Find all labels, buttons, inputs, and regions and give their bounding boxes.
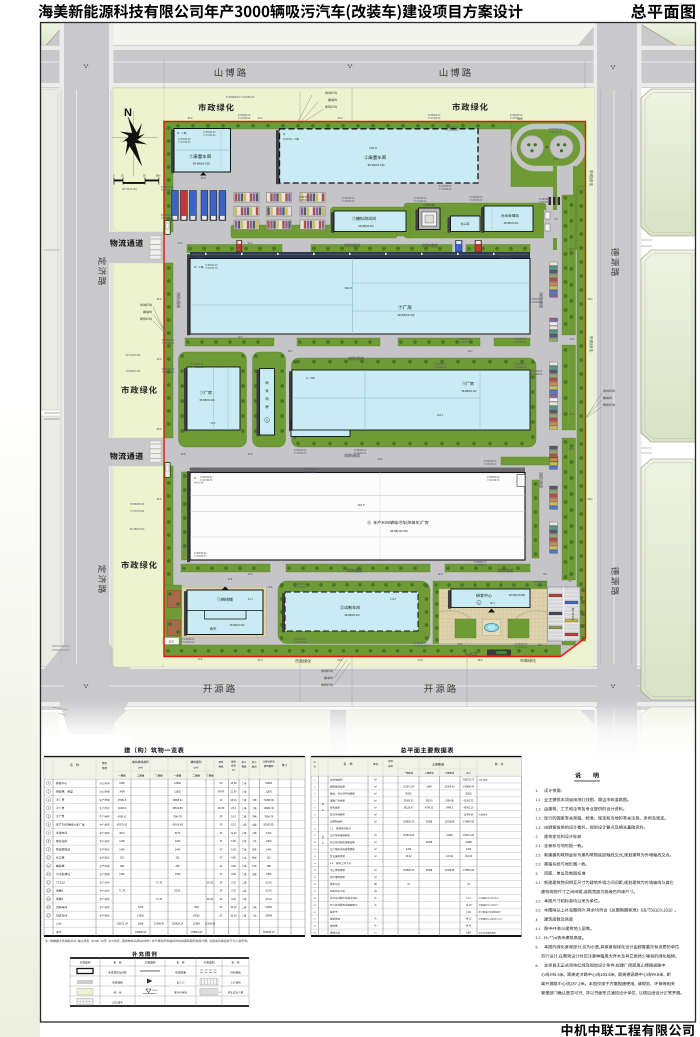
- svg-text:36281: 36281: [405, 793, 412, 795]
- svg-text:X=65066.00: X=65066.00: [342, 198, 355, 200]
- svg-text:12404.89: 12404.89: [464, 814, 474, 816]
- svg-text:3072: 3072: [119, 832, 125, 835]
- svg-text:Y=47066.00: Y=47066.00: [294, 587, 307, 589]
- svg-text:21696: 21696: [446, 835, 453, 837]
- svg-text:1F: 1F: [220, 873, 223, 876]
- svg-text:6F: 6F: [220, 782, 223, 785]
- svg-text:m²: m²: [374, 820, 377, 823]
- svg-text:18.0: 18.0: [288, 350, 293, 353]
- svg-text:15.0: 15.0: [570, 338, 575, 341]
- svg-text:39519.85: 39519.85: [172, 807, 183, 810]
- svg-text:42576.91: 42576.91: [117, 824, 128, 827]
- svg-text:4.2: 4.2: [536, 936, 541, 940]
- svg-text:X=65066.00: X=65066.00: [203, 132, 216, 134]
- svg-text:55083.52: 55083.52: [404, 800, 414, 802]
- svg-text:12.0: 12.0: [569, 248, 574, 251]
- svg-text:Y=47066.00: Y=47066.00: [514, 367, 527, 369]
- svg-text:46.12: 46.12: [466, 919, 473, 921]
- svg-text:2.2: 2.2: [536, 853, 541, 857]
- svg-text:288: 288: [175, 865, 180, 868]
- svg-text:%: %: [374, 926, 376, 928]
- svg-text:m²: m²: [374, 834, 377, 837]
- svg-text:X=65066.00: X=65066.00: [414, 643, 427, 645]
- svg-text:61063.32: 61063.32: [464, 800, 474, 802]
- svg-text:45.0: 45.0: [258, 659, 263, 662]
- svg-text:71.78: 71.78: [119, 890, 126, 893]
- svg-text:26.0: 26.0: [518, 118, 523, 121]
- svg-text:m²: m²: [374, 855, 377, 858]
- svg-text:113571.04: 113571.04: [116, 923, 128, 926]
- svg-text:13.8: 13.8: [248, 453, 253, 456]
- svg-text:15.5: 15.5: [231, 824, 236, 827]
- svg-text:12.0: 12.0: [468, 350, 473, 353]
- svg-text:12.8: 12.8: [378, 458, 383, 461]
- svg-text:7206: 7206: [193, 906, 199, 909]
- svg-text:2400: 2400: [266, 840, 272, 843]
- svg-text:X=65066.00: X=65066.00: [534, 582, 547, 584]
- svg-text:38.98(±6.00): 38.98(±6.00): [199, 398, 214, 402]
- svg-text:X=65066.00: X=65066.00: [414, 198, 427, 200]
- svg-text:36281: 36281: [465, 793, 472, 795]
- svg-text:Y=47066.00: Y=47066.00: [294, 642, 307, 644]
- svg-text:3.2: 3.2: [536, 899, 541, 903]
- svg-text:(m²): (m²): [194, 766, 199, 770]
- svg-text:85153.82: 85153.82: [264, 824, 275, 827]
- svg-text:X=65066.00: X=65066.00: [530, 299, 543, 301]
- svg-text:1680: 1680: [119, 782, 125, 785]
- svg-text:1200: 1200: [175, 840, 181, 843]
- svg-text:Y=47066.00: Y=47066.00: [161, 190, 174, 192]
- svg-text:45.0: 45.0: [588, 298, 593, 301]
- svg-text:4.90: 4.90: [231, 873, 236, 876]
- svg-text:Y=47066.00: Y=47066.00: [189, 472, 202, 474]
- svg-text:6.: 6.: [536, 964, 539, 968]
- svg-text:21988: 21988: [465, 842, 472, 844]
- svg-text:3449.2: 3449.2: [446, 807, 454, 809]
- svg-text:12.8: 12.8: [438, 573, 443, 576]
- svg-text:36.2: 36.2: [338, 117, 343, 120]
- svg-text:3.: 3.: [536, 872, 539, 876]
- svg-text:7894.78: 7894.78: [264, 815, 273, 818]
- svg-text:(m²): (m²): [138, 766, 143, 770]
- svg-text:131.94: 131.94: [446, 856, 454, 858]
- svg-text:4429: 4429: [406, 849, 412, 851]
- svg-text:2466: 2466: [466, 933, 472, 935]
- svg-text:1F: 1F: [220, 881, 223, 884]
- svg-text:Y=47066.00: Y=47066.00: [549, 132, 562, 134]
- svg-text:Y=47066.00: Y=47066.00: [178, 142, 191, 144]
- svg-text:204.3: 204.3: [437, 414, 444, 417]
- svg-text:1F: 1F: [220, 857, 223, 860]
- svg-text:X=65066.00: X=65066.00: [294, 450, 307, 452]
- svg-text:11820: 11820: [265, 790, 272, 793]
- svg-text:m²: m²: [374, 786, 377, 789]
- svg-text:X=65066.00: X=65066.00: [304, 469, 317, 471]
- svg-text:m²: m²: [374, 813, 377, 816]
- svg-text:23.90: 23.90: [230, 782, 237, 785]
- svg-text:45.0: 45.0: [538, 644, 543, 647]
- svg-text:45.0: 45.0: [157, 298, 162, 301]
- svg-text:1.72: 1.72: [466, 898, 471, 900]
- svg-text:X=65060.20: X=65060.20: [194, 553, 207, 555]
- svg-text:6.90: 6.90: [231, 840, 236, 843]
- svg-text:288: 288: [267, 865, 272, 868]
- svg-text:14520: 14520: [193, 914, 200, 917]
- svg-text:Y=47066.00: Y=47066.00: [161, 218, 174, 220]
- svg-text:1.3: 1.3: [536, 817, 541, 821]
- svg-text:202.8: 202.8: [369, 146, 377, 150]
- svg-text:X=65066.00: X=65066.00: [439, 186, 452, 188]
- svg-text:74396.90: 74396.90: [264, 799, 275, 802]
- svg-text:9794.23: 9794.23: [425, 807, 434, 809]
- svg-text:1350: 1350: [266, 873, 272, 876]
- svg-text:178864.98: 178864.98: [463, 821, 475, 823]
- svg-text:1.2: 1.2: [536, 807, 541, 811]
- svg-text:19.00: 19.00: [152, 990, 158, 992]
- svg-text:21969.40: 21969.40: [445, 787, 455, 789]
- svg-text:60.42: 60.42: [266, 881, 273, 884]
- svg-text:X=65066.00: X=65066.00: [294, 584, 307, 586]
- svg-text:16800: 16800: [174, 782, 181, 785]
- svg-text:1440: 1440: [266, 848, 272, 851]
- svg-text:Y=47066.00: Y=47066.00: [530, 374, 543, 376]
- svg-text:60.42: 60.42: [207, 881, 214, 884]
- svg-text:14520: 14520: [137, 914, 144, 917]
- svg-text:3.20: 3.20: [231, 890, 236, 893]
- svg-text:Y=47066.00: Y=47066.00: [534, 585, 547, 587]
- svg-text:2F/3F: 2F/3F: [218, 807, 225, 810]
- svg-text:12.0: 12.0: [570, 413, 575, 416]
- svg-text:Y=47066.00: Y=47066.00: [354, 453, 367, 455]
- svg-text:2.: 2.: [536, 835, 539, 839]
- svg-text:21988: 21988: [426, 821, 433, 823]
- svg-text:Y=47065.70: Y=47065.70: [194, 556, 207, 558]
- svg-text:m²: m²: [374, 779, 377, 782]
- svg-text:3072: 3072: [175, 832, 181, 835]
- svg-text:28.6: 28.6: [338, 659, 343, 662]
- svg-text:X=65066.00: X=65066.00: [510, 115, 523, 117]
- svg-text:28.20: 28.20: [230, 799, 237, 802]
- svg-text:10.40: 10.40: [230, 906, 237, 909]
- svg-text:X=65066.00: X=65066.00: [446, 127, 459, 129]
- svg-text:X=65066.00: X=65066.00: [191, 364, 204, 366]
- svg-text:150828.14: 150828.14: [403, 821, 415, 823]
- svg-text:Y=47066.00: Y=47066.00: [304, 472, 317, 474]
- svg-text:X=65066.00: X=65066.00: [539, 199, 552, 201]
- svg-text:14.2: 14.2: [258, 117, 263, 120]
- svg-text:22.0: 22.0: [248, 242, 253, 245]
- svg-text:60.42: 60.42: [406, 856, 413, 858]
- svg-text:1350: 1350: [175, 873, 181, 876]
- svg-text:10.40: 10.40: [230, 914, 237, 917]
- svg-text:38.98(±15.00): 38.98(±15.00): [390, 529, 408, 533]
- svg-text:2554.98: 2554.98: [445, 800, 454, 802]
- svg-text:113571.04: 113571.04: [403, 787, 415, 789]
- svg-text:Y=47066.00: Y=47066.00: [515, 647, 528, 649]
- svg-text:300836.16: 300836.16: [263, 931, 275, 934]
- svg-text:288: 288: [120, 865, 125, 868]
- svg-text:7894.78: 7894.78: [173, 815, 182, 818]
- svg-text:38.98(±6.00): 38.98(±6.00): [193, 162, 210, 166]
- svg-text:71.78: 71.78: [156, 898, 163, 901]
- svg-text:61.1: 61.1: [248, 598, 253, 601]
- svg-text:Y=47066.00: Y=47066.00: [238, 118, 251, 120]
- svg-text:5.: 5.: [536, 945, 539, 949]
- svg-text:X=65066.00: X=65066.00: [549, 129, 562, 131]
- svg-text:60.42: 60.42: [207, 898, 214, 901]
- svg-text:1440: 1440: [175, 848, 181, 851]
- svg-text:36126.67: 36126.67: [404, 807, 414, 809]
- svg-text:%: %: [374, 905, 376, 907]
- svg-text:Y=47066.70: Y=47066.70: [205, 268, 218, 270]
- svg-text:60.42: 60.42: [174, 890, 181, 893]
- svg-text:28.0: 28.0: [157, 428, 162, 431]
- svg-text:Y=47066.00: Y=47066.00: [484, 464, 497, 466]
- svg-text:X=65067.00: X=65067.00: [126, 369, 141, 373]
- svg-text:Y=47066.00: Y=47066.00: [428, 118, 441, 120]
- svg-text:1F: 1F: [220, 832, 223, 835]
- svg-text:21988: 21988: [426, 842, 433, 844]
- svg-text:153271.28: 153271.28: [463, 835, 475, 837]
- svg-text:60.42: 60.42: [266, 890, 273, 893]
- svg-text:3.3: 3.3: [536, 909, 541, 913]
- svg-text:11820: 11820: [174, 790, 181, 793]
- svg-text:19430.4: 19430.4: [118, 807, 127, 810]
- svg-text:13.8: 13.8: [181, 453, 186, 456]
- svg-text:X=65060.00: X=65060.00: [487, 477, 500, 479]
- svg-text:21936.98: 21936.98: [445, 870, 455, 872]
- svg-text:3925.9: 3925.9: [425, 800, 433, 802]
- svg-text:38.98(±19.80): 38.98(±19.80): [509, 593, 525, 597]
- svg-text:1F: 1F: [220, 840, 223, 843]
- svg-text:13.8: 13.8: [198, 658, 203, 661]
- svg-text:1200: 1200: [119, 840, 125, 843]
- svg-text:7206: 7206: [138, 906, 144, 909]
- svg-text:308729.75: 308729.75: [463, 780, 475, 782]
- svg-text:Y=47066.00: Y=47066.00: [499, 258, 512, 260]
- svg-text:X=65066.00: X=65066.00: [299, 197, 312, 199]
- svg-text:1F: 1F: [220, 865, 223, 868]
- svg-text:3.20: 3.20: [231, 898, 236, 901]
- svg-text:1.: 1.: [536, 789, 539, 793]
- svg-text:X=65066.00: X=65066.00: [514, 339, 527, 341]
- svg-text:X=65066.00: X=65066.00: [162, 340, 175, 342]
- svg-text:Y=47075.00: Y=47075.00: [130, 509, 145, 513]
- svg-text:38.98(±6.00): 38.98(±6.00): [504, 221, 519, 225]
- svg-text:131.8: 131.8: [390, 598, 397, 601]
- svg-text:Y=47066.00: Y=47066.00: [514, 342, 527, 344]
- svg-text:4.: 4.: [536, 918, 539, 922]
- svg-text:39.70(±0.00): 39.70(±0.00): [122, 187, 137, 191]
- svg-text:Y=47066.70: Y=47066.70: [200, 480, 213, 482]
- svg-text:37981.6: 37981.6: [118, 799, 127, 802]
- svg-text:66.0: 66.0: [188, 117, 193, 120]
- svg-text:1F: 1F: [220, 890, 223, 893]
- svg-text:X=65060.00: X=65060.00: [200, 477, 213, 479]
- svg-text:150828.14: 150828.14: [403, 870, 415, 872]
- svg-text:X=65066.00: X=65066.00: [515, 644, 528, 646]
- svg-text:16982.40: 16982.40: [264, 807, 275, 810]
- svg-text:43166.98: 43166.98: [172, 824, 183, 827]
- svg-text:X=65066.00: X=65066.00: [434, 364, 447, 366]
- svg-text:178864.98: 178864.98: [463, 870, 475, 872]
- svg-text:4.1: 4.1: [536, 927, 541, 931]
- svg-text:151: 151: [175, 857, 180, 860]
- svg-text:45.0: 45.0: [157, 498, 162, 501]
- svg-text:1688: 1688: [426, 787, 432, 789]
- svg-text:12.19: 12.19: [466, 905, 473, 907]
- svg-text:1440: 1440: [119, 848, 125, 851]
- svg-text:60.42: 60.42: [266, 898, 273, 901]
- svg-text:39895.31: 39895.31: [172, 799, 183, 802]
- svg-text:1F: 1F: [220, 799, 223, 802]
- svg-text:Y=47066.00: Y=47066.00: [191, 258, 204, 260]
- svg-text:4.90: 4.90: [231, 857, 236, 860]
- svg-text:1F: 1F: [220, 898, 223, 901]
- svg-text:392.8: 392.8: [358, 503, 365, 507]
- svg-text:38.98(±6.00): 38.98(±6.00): [368, 163, 385, 167]
- svg-text:21936.94: 21936.94: [205, 923, 216, 926]
- svg-text:Y=47066.00: Y=47066.00: [446, 130, 459, 132]
- svg-text:5.30: 5.30: [231, 848, 236, 851]
- svg-text:21958.40: 21958.40: [154, 923, 165, 926]
- svg-text:151: 151: [267, 857, 272, 860]
- svg-text:21988: 21988: [193, 923, 200, 926]
- svg-text:m²: m²: [374, 869, 377, 872]
- svg-text:(m): (m): [232, 770, 236, 772]
- svg-text:13.8: 13.8: [268, 586, 273, 589]
- svg-text:16800: 16800: [265, 782, 272, 785]
- svg-text:1.1: 1.1: [536, 798, 541, 802]
- svg-text:3.20: 3.20: [231, 881, 236, 884]
- svg-text:29040: 29040: [265, 914, 272, 917]
- svg-text:%: %: [374, 919, 376, 921]
- svg-text:m²: m²: [374, 799, 377, 802]
- svg-text:12.0: 12.0: [157, 358, 162, 361]
- svg-text:Y=47066.00: Y=47066.00: [470, 200, 483, 202]
- svg-text:Y=47066.00: Y=47066.00: [191, 367, 204, 369]
- svg-text:2.3: 2.3: [536, 863, 541, 867]
- svg-text:1.4: 1.4: [536, 826, 541, 830]
- svg-text:13.8: 13.8: [168, 640, 174, 644]
- svg-text:131575.28: 131575.28: [403, 835, 415, 837]
- svg-text:X=65066.00: X=65066.00: [162, 369, 175, 371]
- svg-text:X=65066.00: X=65066.00: [474, 562, 487, 564]
- svg-text:38.98(±6.00): 38.98(±6.00): [461, 389, 476, 393]
- svg-text:X=65066.00: X=65066.00: [182, 639, 195, 641]
- svg-text:Y=47066.70: Y=47066.70: [487, 480, 500, 482]
- svg-text:X=65066.00: X=65066.00: [354, 450, 367, 452]
- svg-text:Y=47066.00: Y=47066.00: [162, 372, 175, 374]
- svg-text:1.00: 1.00: [466, 912, 471, 914]
- svg-text:X=65066.00: X=65066.00: [459, 339, 472, 341]
- svg-text:22.90: 22.90: [230, 790, 237, 793]
- svg-text:15.8: 15.8: [418, 659, 423, 662]
- svg-text:4429: 4429: [466, 849, 472, 851]
- svg-text:X=65066.00: X=65066.00: [499, 255, 512, 257]
- svg-text:X=65066.00: X=65066.00: [161, 215, 174, 217]
- svg-text:21936.98: 21936.98: [445, 821, 455, 823]
- svg-text:16.8: 16.8: [248, 573, 253, 576]
- svg-text:64.8: 64.8: [211, 422, 216, 425]
- svg-text:39.48(±0.00): 39.48(±0.00): [130, 527, 145, 531]
- svg-text:Y=47066.00: Y=47066.00: [439, 189, 452, 191]
- svg-text:Y=47066.00: Y=47066.00: [182, 642, 195, 644]
- svg-text:m²: m²: [374, 876, 377, 879]
- svg-text:14592: 14592: [265, 906, 272, 909]
- svg-text:X=65066.00: X=65066.00: [189, 469, 202, 471]
- svg-text:X=65063.20: X=65063.20: [205, 265, 218, 267]
- svg-text:12.0: 12.0: [178, 242, 183, 245]
- svg-text:1F: 1F: [220, 848, 223, 851]
- svg-text:38.98(±6.00): 38.98(±6.00): [230, 623, 245, 627]
- svg-text:m²: m²: [374, 848, 377, 851]
- svg-text:39.70(±0.00): 39.70(±0.00): [126, 353, 141, 357]
- svg-text:Y=47066.00: Y=47066.00: [294, 453, 307, 455]
- svg-text:X=65066.00: X=65066.00: [484, 461, 497, 463]
- svg-text:178864.98: 178864.98: [190, 931, 202, 934]
- svg-text:14.2: 14.2: [231, 815, 236, 818]
- svg-text:38.98(±6.00): 38.98(±6.00): [398, 313, 415, 317]
- svg-text:28.0: 28.0: [588, 498, 593, 501]
- svg-text:m²: m²: [374, 841, 377, 844]
- svg-text:12.0: 12.0: [238, 336, 243, 339]
- svg-text:28.0: 28.0: [478, 659, 483, 662]
- svg-text:X=65066.00: X=65066.00: [428, 115, 441, 117]
- svg-text:Y=47066.00: Y=47066.00: [414, 646, 427, 648]
- svg-text:4.90: 4.90: [231, 865, 236, 868]
- svg-text:Y=47066.00: Y=47066.00: [414, 201, 427, 203]
- svg-text:15.0: 15.0: [569, 448, 574, 451]
- svg-text:96.1: 96.1: [490, 601, 496, 605]
- svg-text:3F/6F: 3F/6F: [218, 790, 225, 793]
- svg-text:Y=47066.00: Y=47066.00: [539, 202, 552, 204]
- svg-text:3408: 3408: [119, 790, 125, 793]
- svg-text:11.8: 11.8: [228, 578, 233, 581]
- svg-text:35.0: 35.0: [201, 177, 206, 180]
- svg-text:150828.14: 150828.14: [172, 923, 184, 926]
- svg-text:X=65066.00: X=65066.00: [238, 115, 251, 117]
- svg-text:14.41: 14.41: [466, 926, 473, 928]
- svg-text:Y=47066.00: Y=47066.00: [474, 565, 487, 567]
- svg-text:1688: 1688: [138, 923, 144, 926]
- svg-text:X=65066.00: X=65066.00: [191, 255, 204, 257]
- svg-text:136898.44: 136898.44: [135, 931, 147, 934]
- svg-text:181.26: 181.26: [465, 856, 473, 858]
- svg-text:X=65066.00: X=65066.00: [530, 371, 543, 373]
- svg-text:136898.44: 136898.44: [463, 787, 475, 789]
- svg-text:X=65066.00: X=65066.00: [514, 364, 527, 366]
- svg-text:Y=47066.00: Y=47066.00: [203, 135, 216, 137]
- svg-text:1F: 1F: [220, 824, 223, 827]
- svg-text:18.6: 18.6: [554, 158, 559, 161]
- svg-text:m²: m²: [374, 792, 377, 795]
- svg-text:2.1: 2.1: [536, 844, 541, 848]
- svg-text:2F: 2F: [220, 815, 223, 818]
- svg-text:Y=47066.00: Y=47066.00: [434, 367, 447, 369]
- svg-text:23.4: 23.4: [231, 807, 236, 810]
- svg-text:m²: m²: [374, 806, 377, 809]
- svg-text:71.78: 71.78: [156, 881, 163, 884]
- svg-text:3.1: 3.1: [536, 881, 541, 885]
- svg-text:4035.42: 4035.42: [118, 815, 127, 818]
- svg-text:151: 151: [120, 857, 125, 860]
- svg-text:Y=47066.00: Y=47066.00: [162, 343, 175, 345]
- svg-text:21988: 21988: [426, 870, 433, 872]
- svg-text:X=65066.00: X=65066.00: [470, 197, 483, 199]
- svg-text:X=65068.00 Y=47082.00: X=65068.00 Y=47082.00: [226, 95, 255, 99]
- svg-text:Y=47066.00: Y=47066.00: [459, 342, 472, 344]
